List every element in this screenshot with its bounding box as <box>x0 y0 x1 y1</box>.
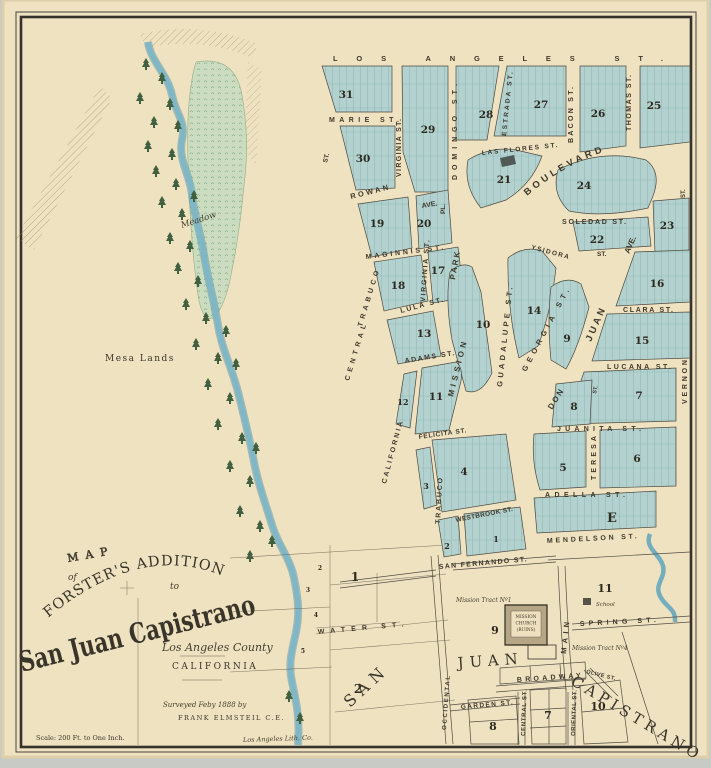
lot-number: 4 <box>314 612 318 619</box>
block-number-31: 31 <box>339 89 354 101</box>
block-number-17: 17 <box>431 265 446 277</box>
block-number-9-church: 9 <box>491 624 499 637</box>
block-number-4: 4 <box>460 466 467 478</box>
mesa-lands-label: Mesa Lands <box>105 354 175 364</box>
lot-number: 3 <box>306 587 310 594</box>
block-number-25: 25 <box>647 100 662 112</box>
title-county: Los Angeles County <box>161 641 273 654</box>
street-label-marie: MARIE ST. <box>329 117 399 124</box>
block-number-16: 16 <box>650 278 665 290</box>
street-label-ysidora-st: ST. <box>597 251 607 258</box>
block-number-7-south: 7 <box>544 709 552 722</box>
scale-note: Scale: 200 Ft. to One Inch. <box>36 734 125 742</box>
church-label-line1: MISSION <box>516 615 537 620</box>
mission-tract-1-label: Mission Tract Nº1 <box>455 597 512 604</box>
street-label-domingo-pl: PL. <box>440 204 447 214</box>
block-number-20: 20 <box>417 218 432 230</box>
block-number-29: 29 <box>421 124 436 136</box>
block-number-2-small: 2 <box>444 541 450 551</box>
block-number-8-south: 8 <box>489 720 497 733</box>
street-label-virginia-upper: VIRGINIA ST. <box>396 119 403 177</box>
title-surveyed-line: Surveyed Feby 1888 by <box>163 701 247 709</box>
block-number-11: 11 <box>429 391 444 403</box>
block-number-6: 6 <box>633 453 640 465</box>
title-surveyor-line: FRANK ELMSTEIL C.E. <box>178 714 285 722</box>
title-to-word: to <box>170 582 180 592</box>
historic-map: LOS ANGELES ST. MARIE ST. VIRGINIA ST. D… <box>0 0 711 768</box>
block-number-30: 30 <box>356 153 371 165</box>
street-label-vernon-st: ST. <box>681 189 687 198</box>
lot-number: 2 <box>318 565 322 572</box>
block-number-12: 12 <box>397 397 408 407</box>
lot-number: 5 <box>301 648 305 655</box>
title-state: CALIFORNIA <box>172 662 258 672</box>
block-number-14: 14 <box>527 305 542 317</box>
block-number-28: 28 <box>479 109 494 121</box>
church-label-line2: CHURCH <box>516 622 537 627</box>
church-label-line3: (RUINS) <box>517 628 536 633</box>
block-number-11-south: 11 <box>597 582 612 595</box>
mission-tract-4-label: Mission Tract Nº4 <box>571 645 628 652</box>
block-number-3: 3 <box>423 481 429 491</box>
block-number-18: 18 <box>391 280 406 292</box>
block-number-9-upper: 9 <box>563 333 570 345</box>
block-number-22: 22 <box>590 234 605 246</box>
block-number-7-upper: 7 <box>635 390 642 402</box>
block-number-1-large: 1 <box>351 570 359 584</box>
block-number-26: 26 <box>591 108 606 120</box>
map-scan: LOS ANGELES ST. MARIE ST. VIRGINIA ST. D… <box>0 0 711 768</box>
block-number-8-upper: 8 <box>570 401 577 413</box>
street-label-soledad: SOLEDAD ST. <box>562 219 626 226</box>
block-number-1-small: 1 <box>493 534 499 544</box>
block-number-5: 5 <box>559 462 566 474</box>
block-number-24: 24 <box>577 180 592 192</box>
block-number-21: 21 <box>497 174 512 186</box>
block-number-13: 13 <box>417 328 432 340</box>
block-number-15: 15 <box>635 335 650 347</box>
block-number-23: 23 <box>660 220 675 232</box>
block-number-19: 19 <box>370 218 385 230</box>
school-building <box>583 598 591 605</box>
school-label: School <box>596 602 615 608</box>
block-number-10: 10 <box>476 319 491 331</box>
block-letter-e: E <box>607 511 617 526</box>
block-number-27: 27 <box>534 99 549 111</box>
